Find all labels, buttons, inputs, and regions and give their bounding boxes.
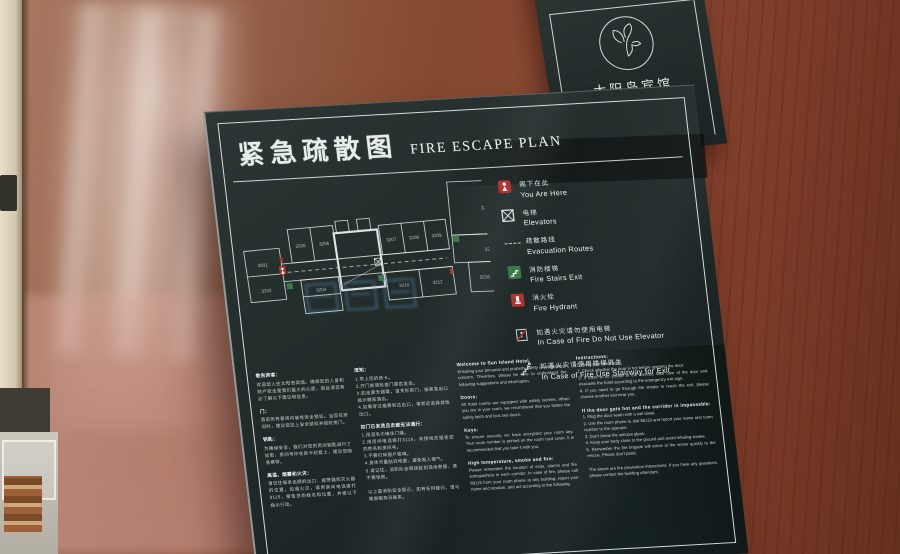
legend-cn: 消火栓 <box>532 289 577 301</box>
svg-text:3202: 3202 <box>261 288 272 294</box>
legend-item-fire-hydrant: 消火栓 Fire Hydrant <box>511 283 700 314</box>
evacuation-route-icon <box>504 237 518 251</box>
legend-item-no-elevator: 如遇火灾请勿使用电梯 In Case of Fire Do Not Use El… <box>515 317 704 348</box>
info-text: 1. Plug the door seam with a wet towel. … <box>582 407 716 459</box>
info-columns: 敬告宾客：欢迎您入住太阳岛宾馆。确保您的人身和财产安全是我们最大的心愿，因此请您… <box>255 348 721 515</box>
fire-hydrant-icon <box>511 293 525 307</box>
svg-text:3208: 3208 <box>409 235 420 241</box>
shelf-clutter <box>0 388 66 554</box>
fire-escape-sign: 紧急疏散图 FIRE ESCAPE PLAN 3201 3202 <box>203 85 748 554</box>
svg-text:3216: 3216 <box>479 274 490 279</box>
legend-cn: 阁下在此 <box>519 176 567 189</box>
info-text: 酒店所有客房均装有安全锁扣。当您在房间时，建议您扣上安全锁扣并锁好房门。 <box>260 412 349 431</box>
svg-text:3206: 3206 <box>319 241 330 247</box>
info-column-en-instructions: Instructions:1. Bring your room card. 2.… <box>576 348 721 497</box>
legend-en: Fire Hydrant <box>533 301 578 312</box>
info-text: The above are fire prevention instructio… <box>588 459 719 479</box>
no-elevator-icon <box>515 328 529 342</box>
legend-item-you-are-here: 阁下在此 You Are Here <box>498 169 687 200</box>
title-cn: 紧急疏散图 <box>236 126 400 172</box>
legend: 阁下在此 You Are Here 电梯 Elevators <box>481 163 703 343</box>
info-text: 欢迎您入住太阳岛宾馆。确保您的人身和财产安全是我们最大的心愿，因此请您务必了解以… <box>256 376 346 402</box>
info-column-en-welcome: Welcome to Sun Island Hotel.Ensuring you… <box>456 356 581 504</box>
info-column-cn-2: 须知：1.带上您的房卡。 2.开门前请检查门是否发烫。 3.如走廊无烟雾，请关好… <box>354 363 462 510</box>
you-are-here-marker <box>279 266 287 275</box>
info-text: All hotel rooms are equipped with safety… <box>461 396 571 421</box>
svg-text:3207: 3207 <box>386 237 397 243</box>
wood-slats <box>4 476 42 532</box>
svg-text:3212: 3212 <box>432 279 443 285</box>
legend-en: Fire Stairs Exit <box>530 272 583 284</box>
info-text: Please remember the location of exits, a… <box>468 461 579 493</box>
you-are-here-icon <box>498 180 512 194</box>
legend-item-fire-stairs: 消防楼梯 Fire Stairs Exit <box>507 254 696 285</box>
info-text: 为确保安全，我们对您的房间钥匙进行了加密，房间号印在房卡封套上，建议您随身携带。 <box>264 440 354 466</box>
info-text: 1.用湿毛巾堵住门缝。 2.用房间电话拨打8119，向接线员报告您的姓名和房间号… <box>361 427 458 481</box>
info-text: 1.带上您的房卡。 2.开门前请检查门是否发烫。 3.如走廊无烟雾，请关好房门，… <box>355 370 451 417</box>
svg-text:3205: 3205 <box>295 243 306 249</box>
svg-text:3210: 3210 <box>399 282 410 288</box>
svg-text:3209: 3209 <box>431 232 442 238</box>
legend-item-evacuation-routes: 疏散路线 Evacuation Routes <box>504 226 693 257</box>
fire-stairs-icon <box>508 265 522 279</box>
info-column-cn-1: 敬告宾客：欢迎您入住太阳岛宾馆。确保您的人身和财产安全是我们最大的心愿，因此请您… <box>255 369 359 516</box>
title-en: FIRE ESCAPE PLAN <box>410 134 564 162</box>
info-text: 1. Bring your room card. 2. Check whethe… <box>576 355 710 401</box>
info-text: Ensuring your personal and property safe… <box>457 363 567 388</box>
legend-item-elevators: 电梯 Elevators <box>501 198 690 229</box>
svg-text:3203: 3203 <box>316 287 327 293</box>
photo-scene: 太阳岛宾馆 SUN ISLAND HOTEL 紧急疏散图 FIRE ESCAPE… <box>0 0 900 554</box>
svg-text:3201: 3201 <box>257 262 268 268</box>
legend-en: Elevators <box>523 216 557 227</box>
legend-cn: 电梯 <box>522 205 556 217</box>
legend-en: You Are Here <box>520 187 568 199</box>
floor-plan: 3201 3202 <box>234 175 501 358</box>
door-hinge <box>0 175 17 211</box>
info-text: To ensure security, we have encrypted yo… <box>465 428 575 453</box>
legend-en: Evacuation Routes <box>526 243 593 256</box>
info-text: 请记住每条走廊的出口、报警器和灭火器的位置。如遇火灾，请用房间电话拨打8119，… <box>268 475 359 508</box>
info-text: 以上是消防安全提示，如有任何疑问，请与楼层服务员联系。 <box>368 483 461 502</box>
elevator-icon <box>501 208 515 222</box>
